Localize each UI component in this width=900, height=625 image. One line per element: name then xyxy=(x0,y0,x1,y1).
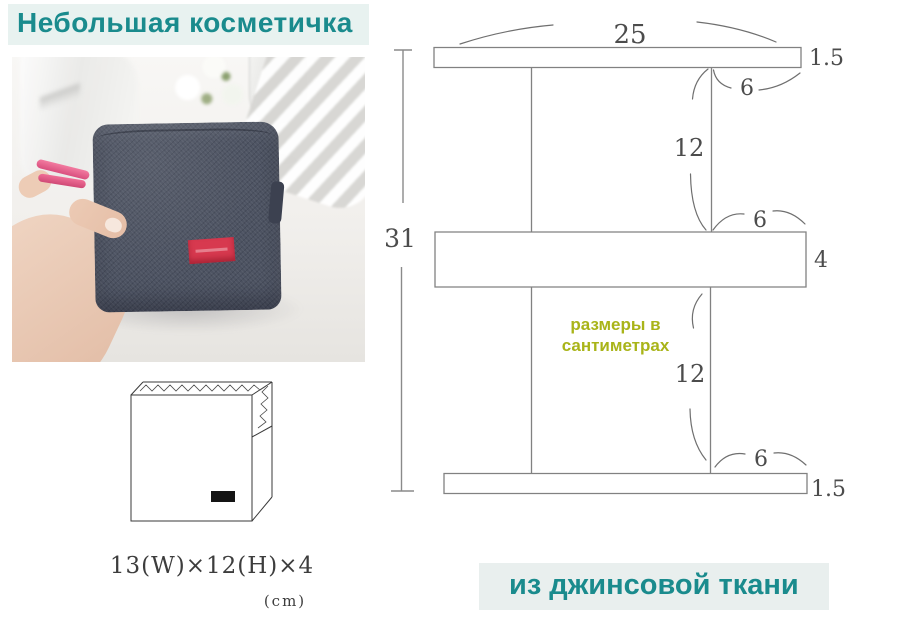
page: Небольшая косметичка xyxy=(0,0,900,625)
pattern-bottom-strip xyxy=(444,474,807,494)
arc-bottom-corner-right xyxy=(774,453,806,465)
sketch-bottom-right-slant xyxy=(252,497,272,521)
units-note-line1: размеры в xyxy=(543,314,688,335)
label-total-height: 31 xyxy=(384,224,416,253)
label-top-corner: 6 xyxy=(740,76,754,101)
sketch-label-mark xyxy=(211,491,235,502)
dimension-labels: 31 25 1.5 6 12 6 4 12 6 1.5 xyxy=(384,20,846,502)
label-bottom-corner: 6 xyxy=(754,447,768,472)
arc-lower-section-bottom xyxy=(690,409,706,460)
fabric-note: из джинсовой ткани xyxy=(479,563,829,610)
units-note: размеры в сантиметрах xyxy=(543,314,688,356)
pattern-top-strip xyxy=(434,48,801,68)
label-upper-section: 12 xyxy=(674,134,705,162)
label-top-width: 25 xyxy=(613,20,646,50)
arc-mid-corner-left xyxy=(713,214,744,230)
sketch-zipper-zigzag-side xyxy=(258,386,268,428)
pattern-middle-band xyxy=(435,232,806,287)
units-note-line2: сантиметрах xyxy=(543,335,688,356)
arc-lower-section-top xyxy=(692,294,702,328)
pattern-outline xyxy=(434,48,807,494)
line-art-overlay: 31 25 1.5 6 12 6 4 12 6 1.5 xyxy=(0,0,900,625)
arc-top-width-right xyxy=(697,22,776,42)
sketch-unit: (cm) xyxy=(250,592,320,610)
sketch-front-face xyxy=(131,395,252,521)
sketch-left-top-slant xyxy=(131,382,143,395)
arc-upper-section-top xyxy=(693,69,709,99)
arc-mid-corner-right xyxy=(773,211,805,224)
label-top-strip-height: 1.5 xyxy=(809,46,844,71)
measure-line-31 xyxy=(391,50,414,491)
bag-sketch xyxy=(131,382,272,521)
arc-top-corner-right xyxy=(759,73,800,90)
label-lower-section: 12 xyxy=(675,360,706,388)
sketch-zipper-zigzag xyxy=(140,385,266,391)
arc-top-corner-left xyxy=(714,70,732,88)
label-bottom-strip-height: 1.5 xyxy=(811,477,846,502)
arc-bottom-corner-left xyxy=(715,454,745,467)
annotation-arcs xyxy=(460,22,806,467)
sketch-fold-line xyxy=(252,426,272,437)
label-middle-band: 4 xyxy=(814,248,828,273)
label-mid-corner: 6 xyxy=(753,208,767,233)
sketch-dimensions: 13(W)×12(H)×4 xyxy=(92,553,332,579)
arc-top-width-left xyxy=(460,25,553,44)
arc-upper-section-bottom xyxy=(691,174,707,230)
